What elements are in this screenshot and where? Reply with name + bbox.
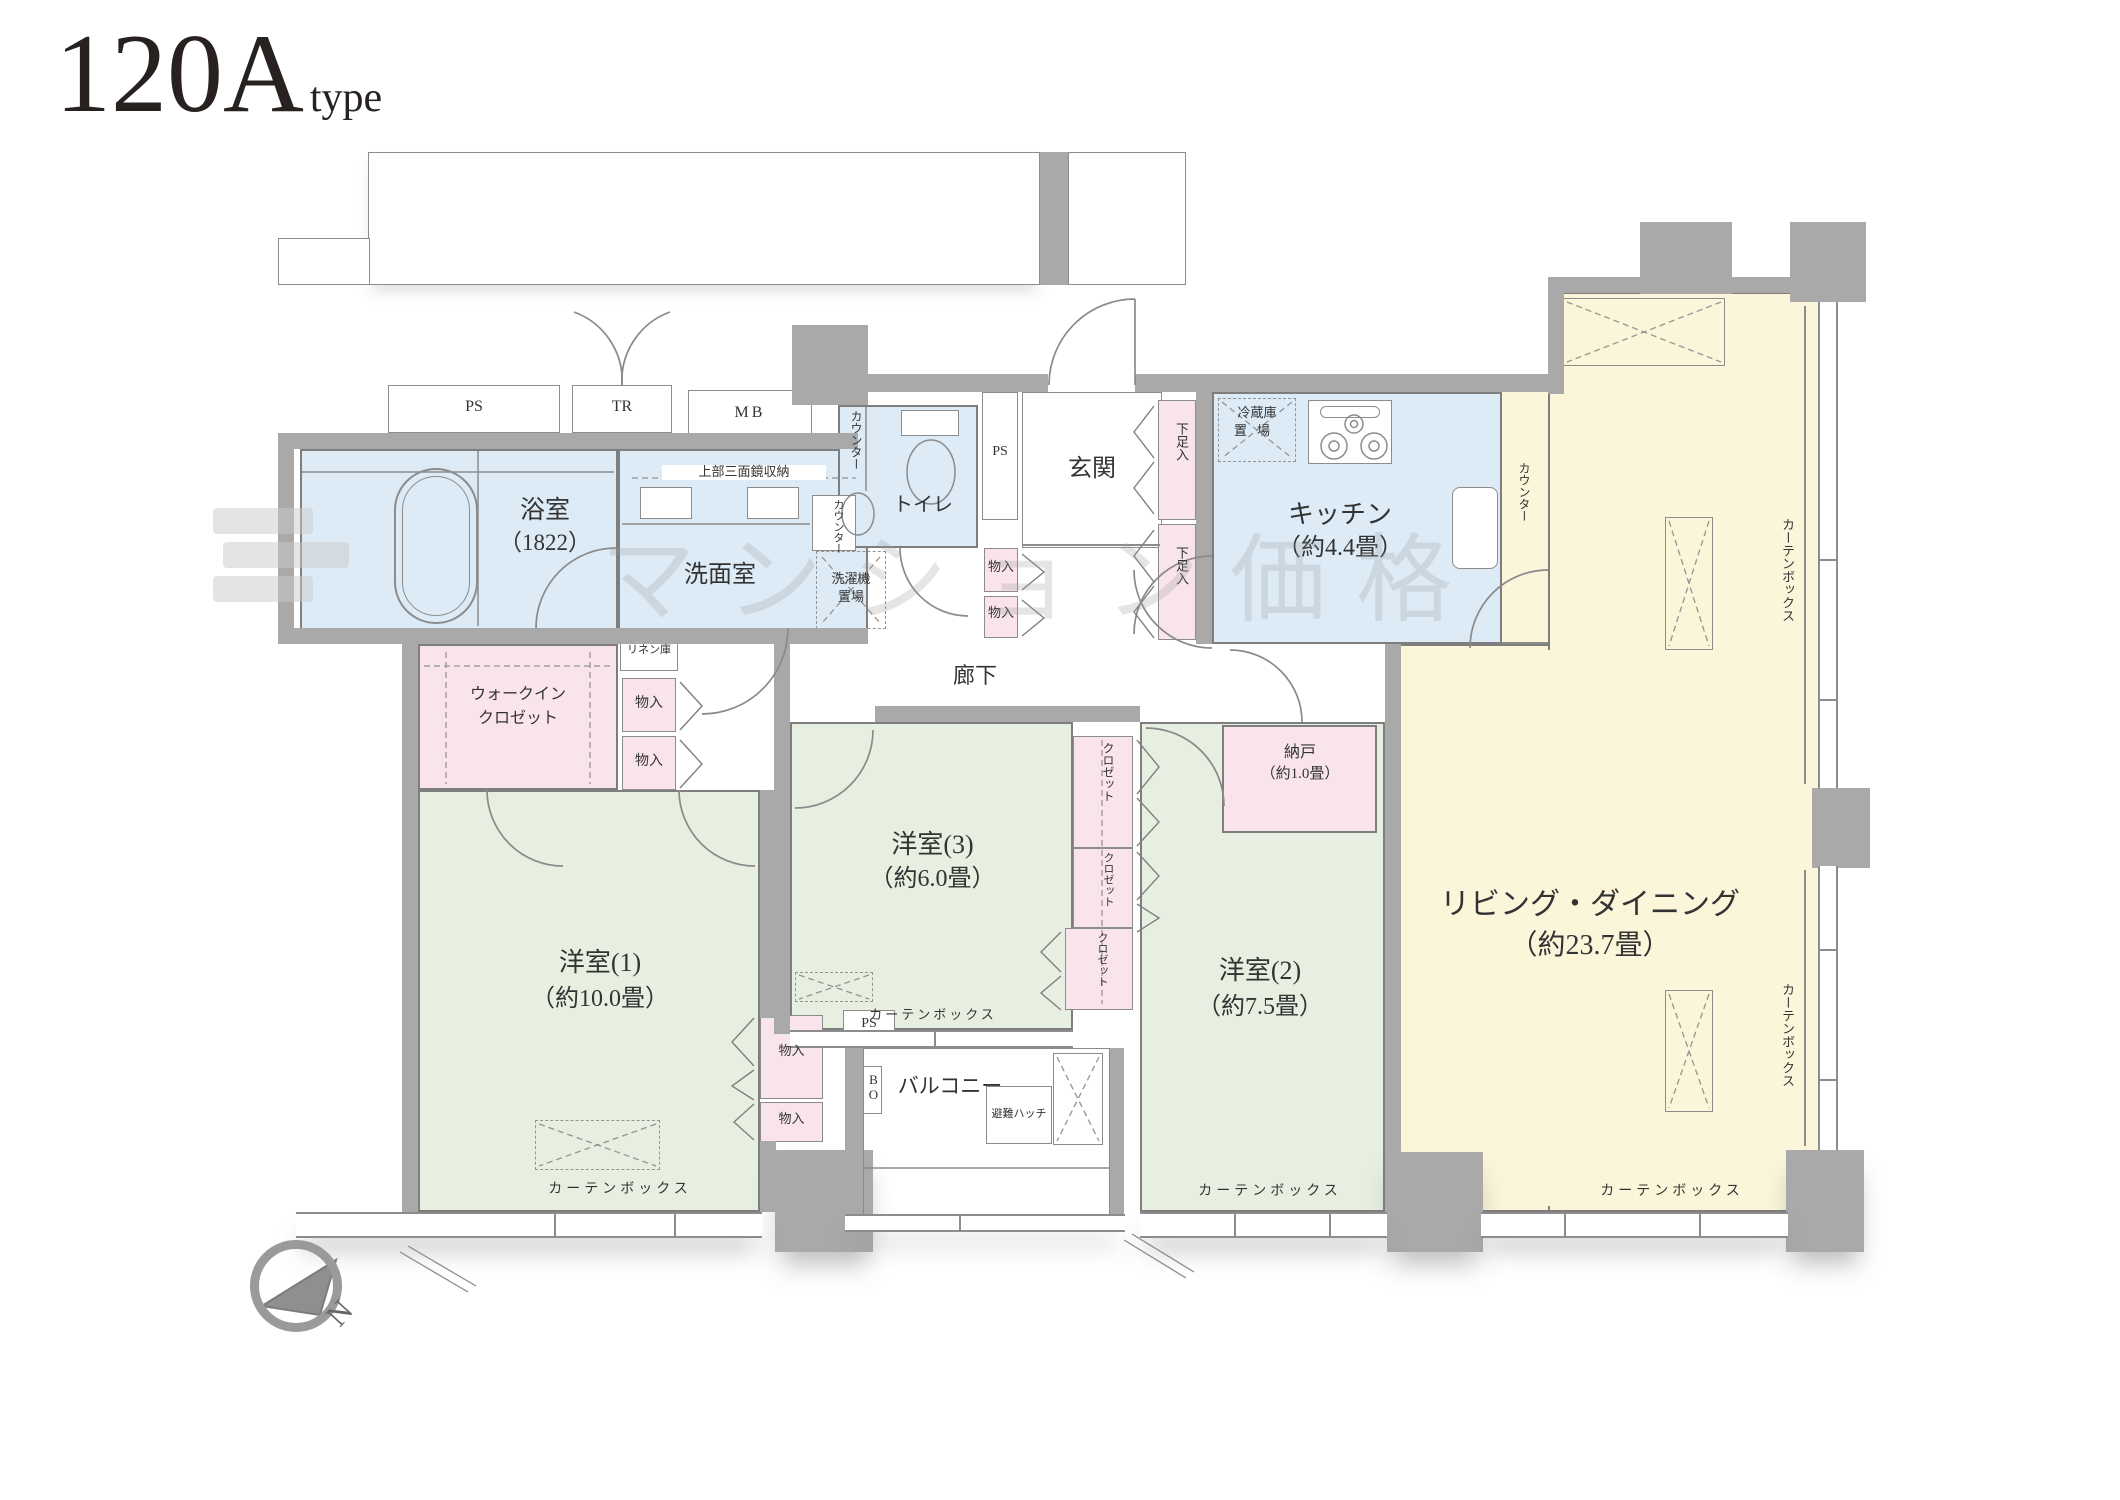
window-bedroom3-balcony: [790, 1030, 1073, 1048]
curtain-box-right-1: カーテンボックス: [1772, 518, 1794, 622]
pillar: [1387, 1152, 1483, 1252]
living-size: （約23.7畳）: [1400, 930, 1780, 961]
living-label: リビング・ダイニング: [1380, 888, 1800, 922]
shaft-ps-toilet-label: PS: [982, 444, 1018, 460]
living-seam: [1544, 650, 1554, 1206]
shaft-bo-label: BO: [856, 1072, 880, 1102]
wall-segment: [875, 706, 1140, 722]
wall-segment: [760, 790, 776, 1018]
closet-1-label: クロゼット: [1092, 742, 1114, 802]
fridge-label-1: 冷蔵庫: [1220, 406, 1294, 421]
furniture-box-bedroom1: [535, 1120, 660, 1170]
door-arc: [1049, 299, 1135, 385]
closet-3-label: クロゼット: [1086, 932, 1108, 987]
wall-segment: [840, 374, 1048, 392]
nando-size: （約1.0畳）: [1222, 766, 1378, 783]
pillar: [1640, 222, 1732, 294]
watermark-logo: [213, 508, 313, 534]
bedroom3-size: （約6.0畳）: [770, 866, 1095, 893]
bedroom1-storage-2-label: 物入: [760, 1112, 823, 1127]
counter-strip-line: [1502, 642, 1548, 644]
wall-segment: [1385, 644, 1401, 1212]
ceiling-storage-mid: [1665, 517, 1713, 650]
shoe-box-1-label: 下足入: [1166, 422, 1188, 461]
hallway-label: 廊下: [935, 664, 1015, 689]
hatch-label: 避難ハッチ: [987, 1108, 1051, 1120]
shaft-mb-label: MB: [688, 404, 812, 422]
window-sill-living: [1481, 1212, 1788, 1238]
common-corridor: [368, 152, 1040, 285]
wic-label-1: ウォークイン: [430, 686, 606, 704]
watermark-logo: [223, 542, 349, 568]
fridge-label-2: 置場: [1220, 424, 1294, 439]
door-arc: [574, 312, 622, 385]
ceiling-storage-low: [1665, 990, 1713, 1112]
title-main: 120A: [55, 18, 304, 130]
closet-2-label: クロゼット: [1092, 852, 1114, 907]
pillar: [1790, 222, 1866, 302]
nando-label: 納戸: [1225, 744, 1375, 762]
window-living-right-2: [1818, 866, 1838, 1150]
wall-segment: [1040, 152, 1068, 285]
floor-plan: PS TR MB PS PS BO 浴室 （1822） 上部三面鏡収納 洗面室 …: [0, 0, 2120, 1500]
pillar: [792, 325, 868, 405]
bedroom3-label: 洋室(3): [770, 830, 1095, 859]
wall-segment: [1196, 374, 1564, 392]
entrance-label: 玄関: [1050, 456, 1134, 483]
curtain-box-bedroom2: カーテンボックス: [1185, 1184, 1355, 1200]
pillar: [1812, 788, 1870, 868]
ceiling-storage-top: [1563, 298, 1725, 366]
curtain-box-right-2: カーテンボックス: [1772, 983, 1794, 1087]
bedroom2-label: 洋室(2): [1140, 956, 1380, 985]
wall-segment: [760, 1141, 776, 1212]
common-corridor-notch: [278, 238, 370, 285]
pillar: [775, 1150, 873, 1252]
furniture-box-bedroom3: [795, 972, 873, 1002]
watermark-text: マンション価格: [600, 502, 1482, 641]
pillar: [1786, 1150, 1864, 1252]
window-sill-bedroom1: [296, 1212, 762, 1238]
toilet-tank: [901, 410, 959, 436]
mirror-storage-label: 上部三面鏡収納: [662, 465, 826, 480]
curtain-rail-2: [1804, 870, 1806, 1146]
door-arc: [1230, 650, 1302, 722]
strip-storage-1-label: 物入: [622, 696, 676, 712]
wall-segment: [1548, 277, 1564, 394]
bedroom1-size: （約10.0畳）: [430, 986, 770, 1013]
balcony-label: バルコニー: [880, 1075, 1020, 1099]
room-living-ext: [1395, 644, 1548, 1212]
counter-label-kitchen: カウンター: [1506, 462, 1530, 522]
strip-storage-2-label: 物入: [622, 754, 676, 770]
linen-label: リネン庫: [620, 644, 678, 656]
wall-segment: [1135, 374, 1196, 392]
shaft-tr-label: TR: [572, 398, 672, 416]
door-arc: [622, 312, 670, 385]
title-sub: type: [310, 74, 382, 122]
page-title: 120A type: [55, 18, 382, 130]
entrance-porch: [1068, 152, 1186, 285]
shaft-ps-top-label: PS: [388, 398, 560, 416]
bedroom2-size: （約7.5畳）: [1140, 994, 1380, 1021]
curtain-box-living: カーテンボックス: [1582, 1184, 1762, 1200]
counter-label-toilet: カウンター: [838, 410, 862, 470]
bedroom1-label: 洋室(1): [430, 948, 770, 977]
wall-segment: [1110, 1048, 1124, 1232]
stove-grill: [1320, 406, 1380, 418]
bedroom1-storage-1-label: 物入: [760, 1044, 823, 1059]
balcony-edge: [845, 1214, 1125, 1232]
curtain-rail-1: [1804, 306, 1806, 784]
window-living-right-1: [1818, 302, 1838, 788]
curtain-box-bedroom1: カーテンボックス: [535, 1182, 705, 1198]
window-sill-bedroom2: [1140, 1212, 1387, 1238]
wall-segment: [278, 433, 858, 449]
watermark-logo: [213, 576, 313, 602]
wic-label-2: クロゼット: [430, 710, 606, 728]
curtain-box-bedroom3: カーテンボックス: [858, 1008, 1008, 1023]
wall-segment: [402, 628, 418, 1212]
